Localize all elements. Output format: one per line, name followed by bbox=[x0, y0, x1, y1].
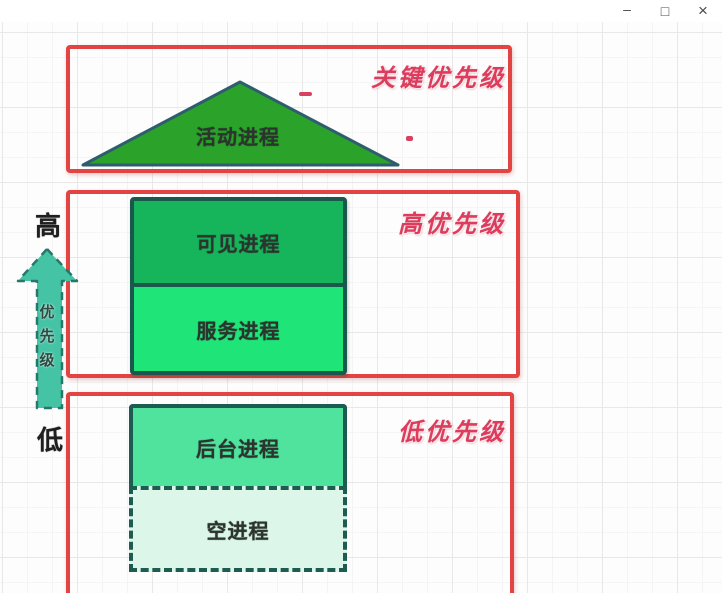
visible-process-box[interactable]: 可见进程 bbox=[134, 201, 343, 287]
maximize-icon[interactable]: □ bbox=[646, 0, 684, 22]
axis-label-low: 低 bbox=[37, 420, 63, 457]
service-process-label: 服务进程 bbox=[197, 315, 281, 344]
section-label-high-priority: 高优先级 bbox=[398, 204, 506, 239]
empty-process-box[interactable]: 空进程 bbox=[129, 486, 347, 572]
service-process-box[interactable]: 服务进程 bbox=[134, 287, 343, 371]
window-controls: – □ × bbox=[608, 0, 722, 22]
visible-process-label: 可见进程 bbox=[197, 228, 281, 257]
title-bar: – □ × bbox=[0, 0, 722, 22]
app-window: – □ × 关键优先级 活动进程 高优先级 可见进程 服务进程 低优先级 后台进… bbox=[0, 0, 722, 593]
activity-process-label: 活动进程 bbox=[158, 121, 318, 150]
section-label-critical-priority: 关键优先级 bbox=[371, 58, 506, 93]
section-label-low-priority: 低优先级 bbox=[398, 412, 506, 447]
background-process-box[interactable]: 后台进程 bbox=[129, 404, 347, 486]
red-dot-annotation bbox=[406, 136, 413, 141]
background-process-label: 后台进程 bbox=[196, 433, 280, 462]
priority-arrow-char-1: 优 bbox=[38, 301, 56, 322]
priority-arrow-char-3: 级 bbox=[38, 349, 56, 370]
high-priority-process-stack[interactable]: 可见进程 服务进程 bbox=[130, 197, 347, 375]
empty-process-label: 空进程 bbox=[207, 515, 270, 544]
close-icon[interactable]: × bbox=[684, 0, 722, 22]
axis-label-high: 高 bbox=[35, 206, 61, 243]
priority-arrow-char-2: 先 bbox=[38, 325, 56, 346]
red-dash-annotation bbox=[299, 92, 312, 96]
minimize-icon[interactable]: – bbox=[608, 0, 646, 22]
